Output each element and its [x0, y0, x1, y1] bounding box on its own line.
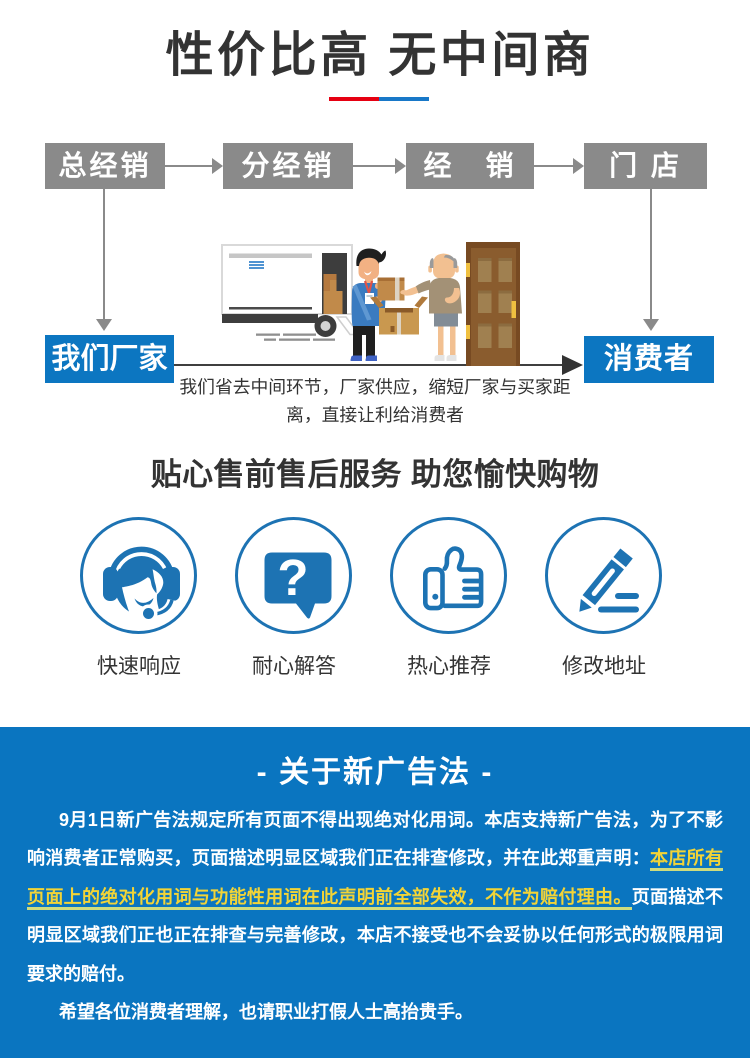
svg-text:?: ?	[277, 549, 308, 606]
